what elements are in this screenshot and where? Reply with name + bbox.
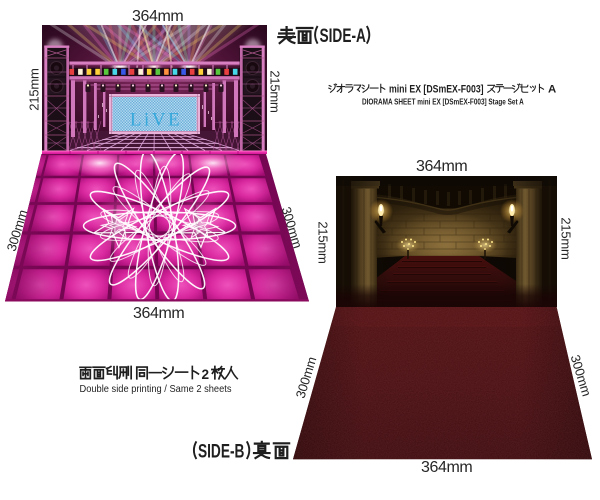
svg-text:DIORAMA SHEET mini EX [DSmEX-F: DIORAMA SHEET mini EX [DSmEX-F003] Stage… bbox=[362, 97, 524, 107]
svg-text:Double side printing / Same 2: Double side printing / Same 2 sheets bbox=[80, 384, 232, 395]
svg-text:SIDE-B: SIDE-B bbox=[198, 440, 244, 462]
svg-text:SIDE-A: SIDE-A bbox=[320, 25, 366, 47]
svg-text:2: 2 bbox=[202, 367, 210, 382]
svg-text:mini EX [DSmEX-F003]: mini EX [DSmEX-F003] bbox=[389, 84, 484, 96]
svg-text:A: A bbox=[548, 84, 556, 96]
